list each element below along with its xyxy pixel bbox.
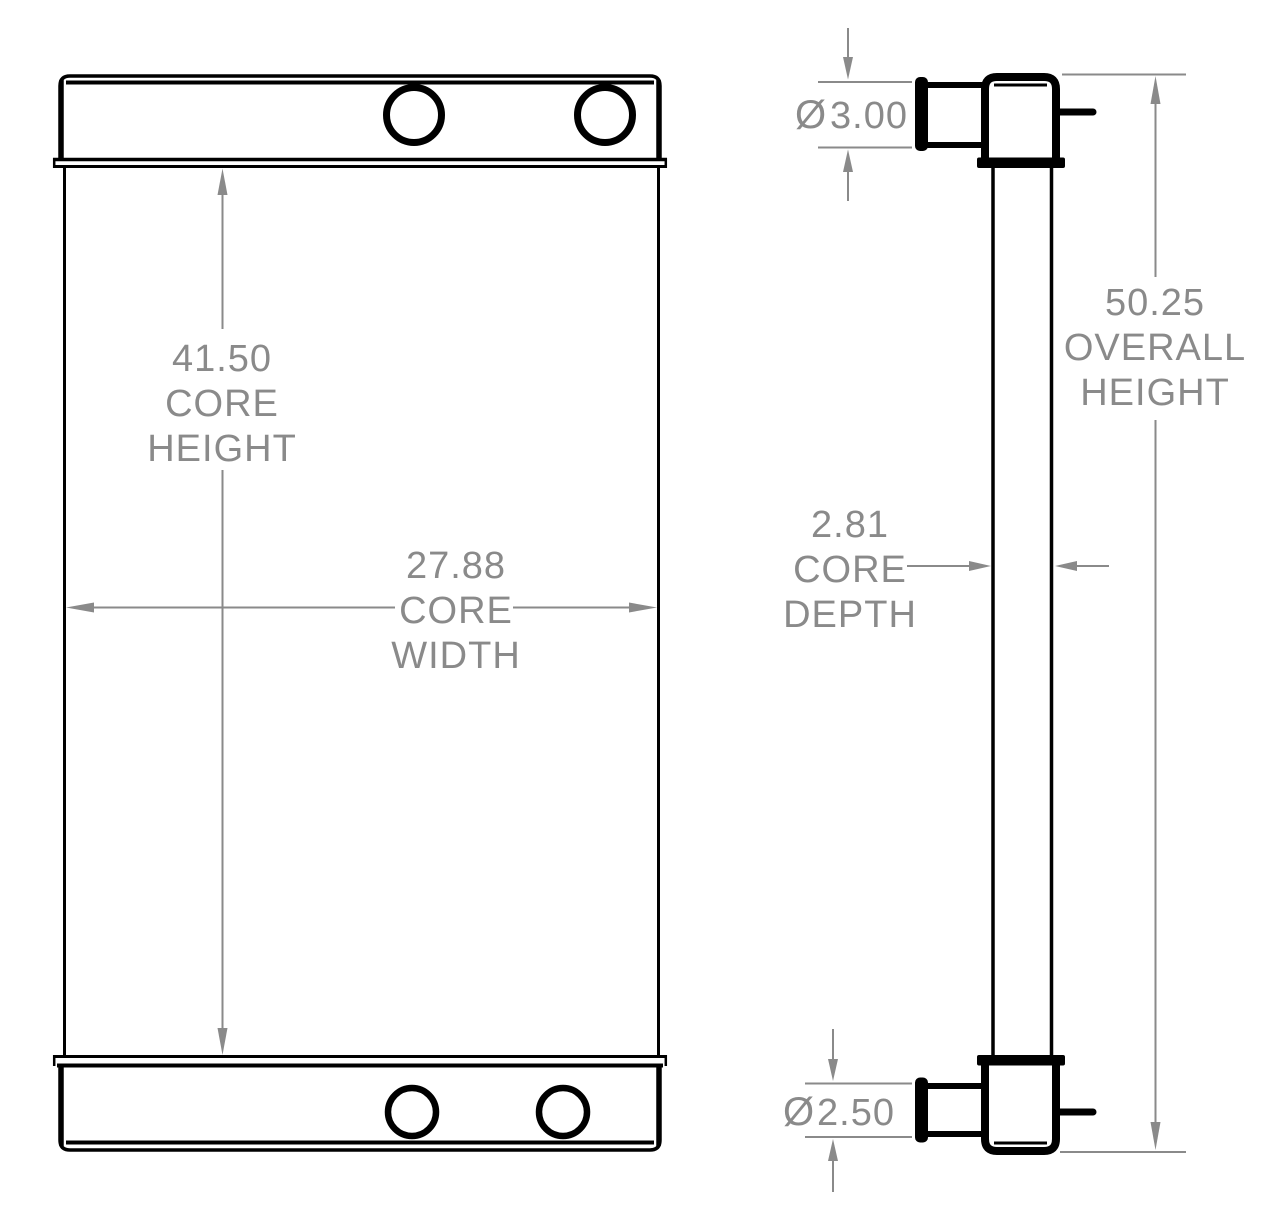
- arrowhead-left-icon: [66, 603, 94, 613]
- core-width-label-line1: CORE: [399, 590, 513, 632]
- core-height-dimension: 41.50 CORE HEIGHT: [147, 169, 297, 1056]
- side-top-tank-outline: [985, 77, 1056, 160]
- arrowhead-down-icon: [828, 1059, 838, 1081]
- overall-height-label-line2: HEIGHT: [1080, 372, 1230, 414]
- core-depth-label-line1: CORE: [793, 549, 907, 591]
- top-port-diameter-dimension: Ø 3.00: [795, 28, 912, 201]
- arrowhead-up-icon: [218, 169, 228, 196]
- core-height-label-line2: HEIGHT: [147, 428, 297, 470]
- top-port-diameter-value: 3.00: [830, 95, 908, 137]
- diameter-symbol: Ø: [795, 93, 827, 137]
- arrowhead-left-icon: [1055, 561, 1077, 571]
- bottom-tank-port-left: [388, 1088, 436, 1136]
- core-depth-label-line2: DEPTH: [783, 594, 917, 636]
- core-depth-dimension: 2.81 CORE DEPTH: [783, 504, 1109, 636]
- arrowhead-right-icon: [969, 561, 991, 571]
- arrowhead-up-icon: [843, 150, 853, 173]
- bottom-tank-port-right: [539, 1088, 587, 1136]
- overall-height-value: 50.25: [1105, 282, 1205, 324]
- bottom-port-diameter-dimension: Ø 2.50: [783, 1029, 912, 1192]
- side-bottom-flange: [977, 1055, 1065, 1066]
- side-top-flange: [977, 158, 1065, 169]
- arrowhead-right-icon: [629, 603, 657, 613]
- front-view: [53, 76, 667, 1150]
- top-port-stub-cap: [915, 77, 928, 151]
- core-height-label-line1: CORE: [165, 383, 279, 425]
- radiator-technical-drawing: 41.50 CORE HEIGHT 27.88 CORE WIDTH Ø 3.0…: [0, 0, 1283, 1223]
- core-width-label-line2: WIDTH: [391, 635, 521, 677]
- core-depth-value: 2.81: [811, 504, 889, 546]
- overall-height-dimension: 50.25 OVERALL HEIGHT: [1060, 75, 1246, 1153]
- arrowhead-down-icon: [218, 1028, 228, 1055]
- top-tank-port-right: [578, 88, 633, 143]
- top-tank-port-left: [387, 88, 442, 143]
- top-tank-outline: [60, 76, 660, 159]
- arrowhead-up-icon: [828, 1139, 838, 1161]
- bottom-port-diameter-value: 2.50: [817, 1092, 895, 1134]
- bottom-port-stub-cap: [915, 1078, 928, 1143]
- diameter-symbol: Ø: [783, 1090, 815, 1134]
- side-bottom-tank-outline: [985, 1063, 1056, 1151]
- overall-height-label-line1: OVERALL: [1064, 327, 1246, 369]
- core-width-dimension: 27.88 CORE WIDTH: [66, 545, 657, 677]
- side-view: [915, 77, 1093, 1151]
- core-width-value: 27.88: [406, 545, 506, 587]
- core-height-value: 41.50: [172, 338, 272, 380]
- arrowhead-down-icon: [843, 57, 853, 80]
- arrowhead-up-icon: [1151, 76, 1161, 104]
- arrowhead-down-icon: [1151, 1122, 1161, 1150]
